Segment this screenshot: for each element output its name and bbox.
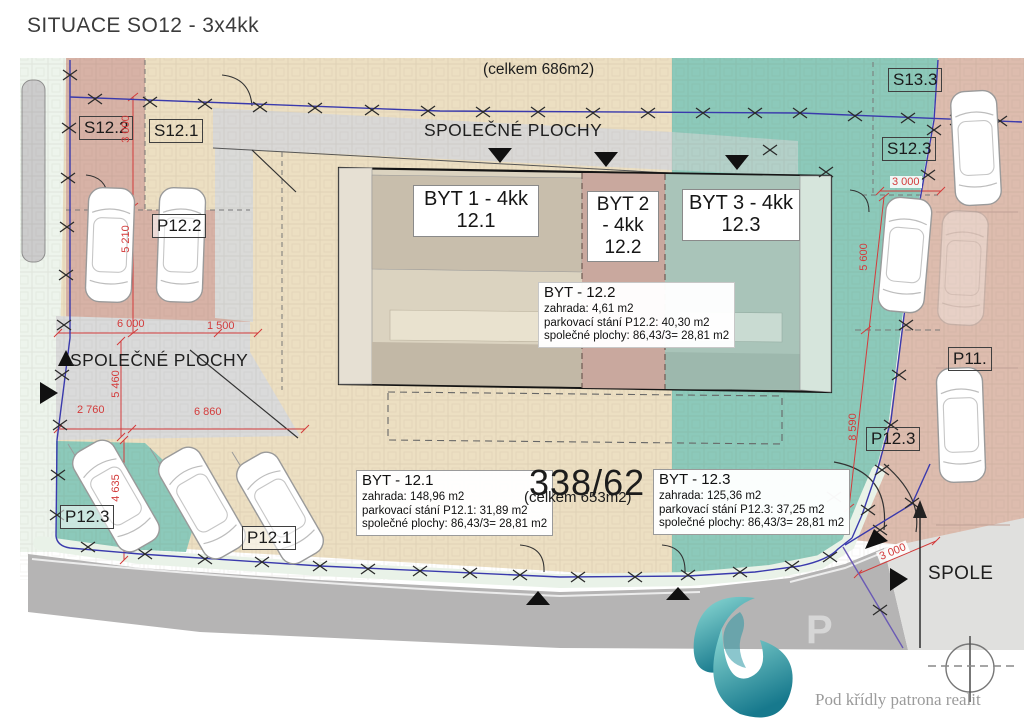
- info-line: společné plochy: 86,43/3= 28,81 m2: [362, 518, 547, 532]
- watermark-letter: P: [806, 608, 833, 653]
- info-line: společné plochy: 86,43/3= 28,81 m2: [659, 517, 844, 531]
- dim-left-5210: 5 210: [120, 225, 132, 253]
- unit-number: 12.2: [592, 237, 654, 258]
- unit-label-byt3: BYT 3 - 4kk 12.3: [682, 189, 800, 241]
- plot-label-p11: P11.: [948, 347, 992, 371]
- info-line: parkovací stání P12.1: 31,89 m2: [362, 505, 547, 519]
- dim-right-8590: 8 590: [847, 413, 859, 441]
- unit-label-byt1: BYT 1 - 4kk 12.1: [413, 185, 539, 237]
- info-line: parkovací stání P12.3: 37,25 m2: [659, 504, 844, 518]
- unit-number: 12.1: [414, 210, 538, 232]
- dim-bottom-4635: 4 635: [110, 474, 122, 502]
- unit-name: BYT 1 - 4kk: [414, 188, 538, 210]
- info-line: zahrada: 148,96 m2: [362, 491, 547, 505]
- plot-label-p12-2: P12.2: [152, 214, 206, 238]
- info-box-byt12-3: BYT - 12.3 zahrada: 125,36 m2 parkovací …: [653, 469, 850, 535]
- parcel-total: (celkem 653m2): [524, 489, 632, 506]
- plot-label-s13-3: S13.3: [888, 68, 942, 92]
- page-title: SITUACE SO12 - 3x4kk: [27, 14, 259, 38]
- unit-name: BYT 3 - 4kk: [683, 192, 799, 214]
- common-area-label-left: SPOLEČNÉ PLOCHY: [70, 350, 248, 371]
- dim-right-5600: 5 600: [858, 243, 870, 271]
- dim-left-1500: 1 500: [207, 320, 235, 332]
- top-area-total: (celkem 686m2): [483, 61, 594, 79]
- info-line: zahrada: 4,61 m2: [544, 303, 729, 317]
- dim-right-3000: 3 000: [890, 176, 922, 188]
- unit-name: BYT 2 - 4kk: [592, 194, 654, 237]
- info-title: BYT - 12.2: [544, 284, 729, 303]
- plot-label-s12-3: S12.3: [882, 137, 936, 161]
- dim-left-3000: 3 000: [120, 115, 132, 143]
- common-area-label-right: SPOLE: [928, 563, 993, 585]
- dim-bottom-6860: 6 860: [194, 406, 222, 418]
- unit-number: 12.3: [683, 214, 799, 236]
- info-line: společné plochy: 86,43/3= 28,81 m2: [544, 330, 729, 344]
- info-title: BYT - 12.3: [659, 471, 844, 490]
- info-box-byt12-2: BYT - 12.2 zahrada: 4,61 m2 parkovací st…: [538, 282, 735, 348]
- plot-label-p12-3-left: P12.3: [60, 505, 114, 529]
- site-plan: SITUACE SO12 - 3x4kk (celkem 686m2) SPOL…: [0, 0, 1024, 724]
- unit-label-byt2: BYT 2 - 4kk 12.2: [587, 191, 659, 262]
- plot-label-p12-3-right: P12.3: [866, 427, 920, 451]
- dim-left-5460: 5 460: [110, 370, 122, 398]
- info-line: zahrada: 125,36 m2: [659, 490, 844, 504]
- dim-bottom-2760: 2 760: [77, 404, 105, 416]
- logo-tagline: Pod křídly patrona realit: [815, 690, 981, 710]
- info-line: parkovací stání P12.2: 40,30 m2: [544, 317, 729, 331]
- plot-label-p12-1: P12.1: [242, 526, 296, 550]
- common-area-label-top: SPOLEČNÉ PLOCHY: [424, 120, 602, 141]
- dim-left-6000: 6 000: [117, 318, 145, 330]
- info-title: BYT - 12.1: [362, 472, 547, 491]
- plot-label-s12-1: S12.1: [149, 119, 203, 143]
